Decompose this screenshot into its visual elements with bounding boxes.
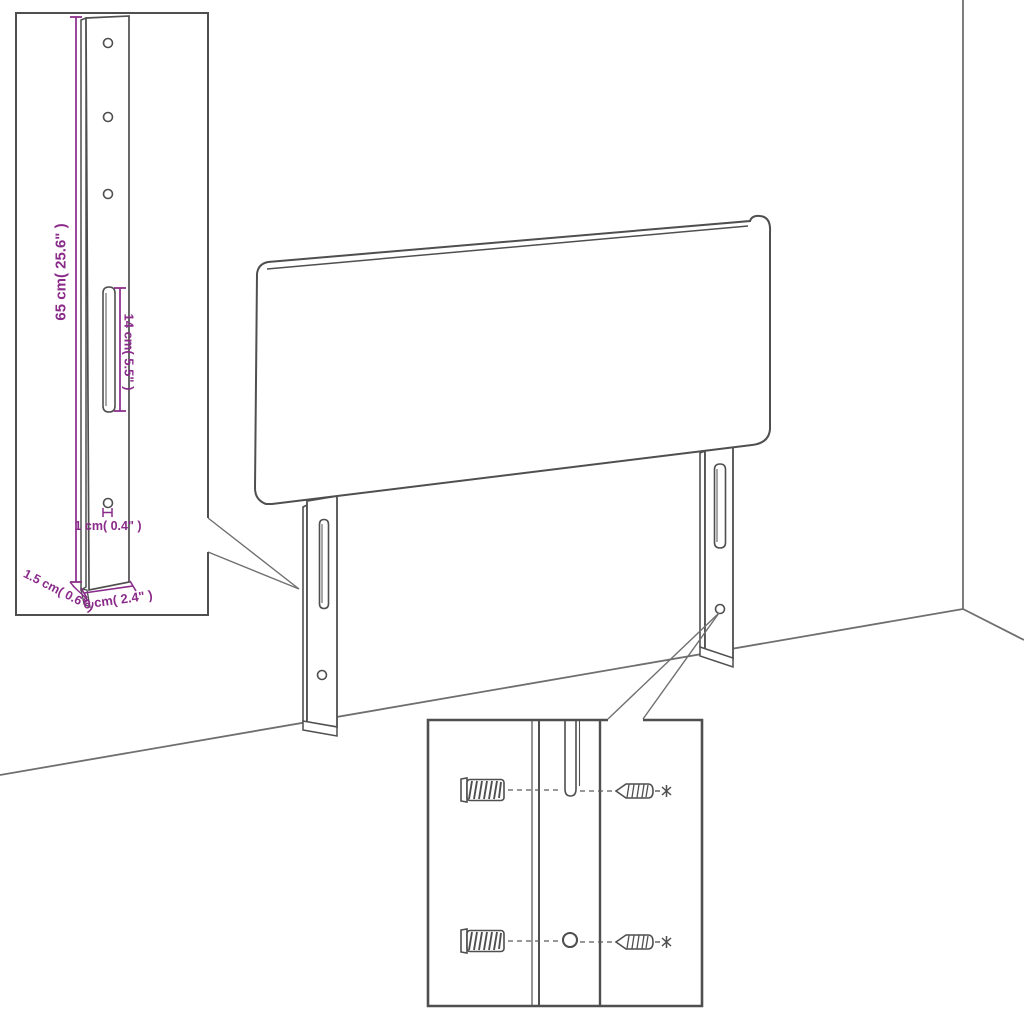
diagram-canvas: 65 cm( 25.6" ) 14 cm( 5.5" ) 1 cm( 0.4" …: [0, 0, 1024, 1024]
mounting-callout-line-right: [643, 613, 719, 719]
dimension-label-height: 65 cm( 25.6" ): [53, 223, 70, 320]
callout-lines: [208, 518, 719, 719]
bracket-detail-inset: 65 cm( 25.6" ) 14 cm( 5.5" ) 1 cm( 0.4" …: [16, 13, 208, 615]
mounting-hole: [563, 933, 577, 947]
bracket-callout-line-lower: [208, 552, 299, 589]
headboard-leg-left: [303, 496, 337, 736]
bracket-front-face: [86, 16, 129, 590]
dimension-label-hole: 1 cm( 0.4" ): [74, 519, 141, 533]
assembly-diagram: 65 cm( 25.6" ) 14 cm( 5.5" ) 1 cm( 0.4" …: [0, 0, 1024, 1024]
bracket-callout-line-upper: [208, 518, 299, 589]
headboard-panel: [255, 216, 770, 504]
mounting-detail-inset: [428, 720, 702, 1006]
mounting-callout-line-left: [608, 613, 719, 719]
panel-outline: [255, 216, 770, 504]
dimension-label-slot: 14 cm( 5.5" ): [122, 314, 137, 391]
floor-line-right: [963, 609, 1024, 640]
bracket-side-face: [81, 18, 86, 590]
